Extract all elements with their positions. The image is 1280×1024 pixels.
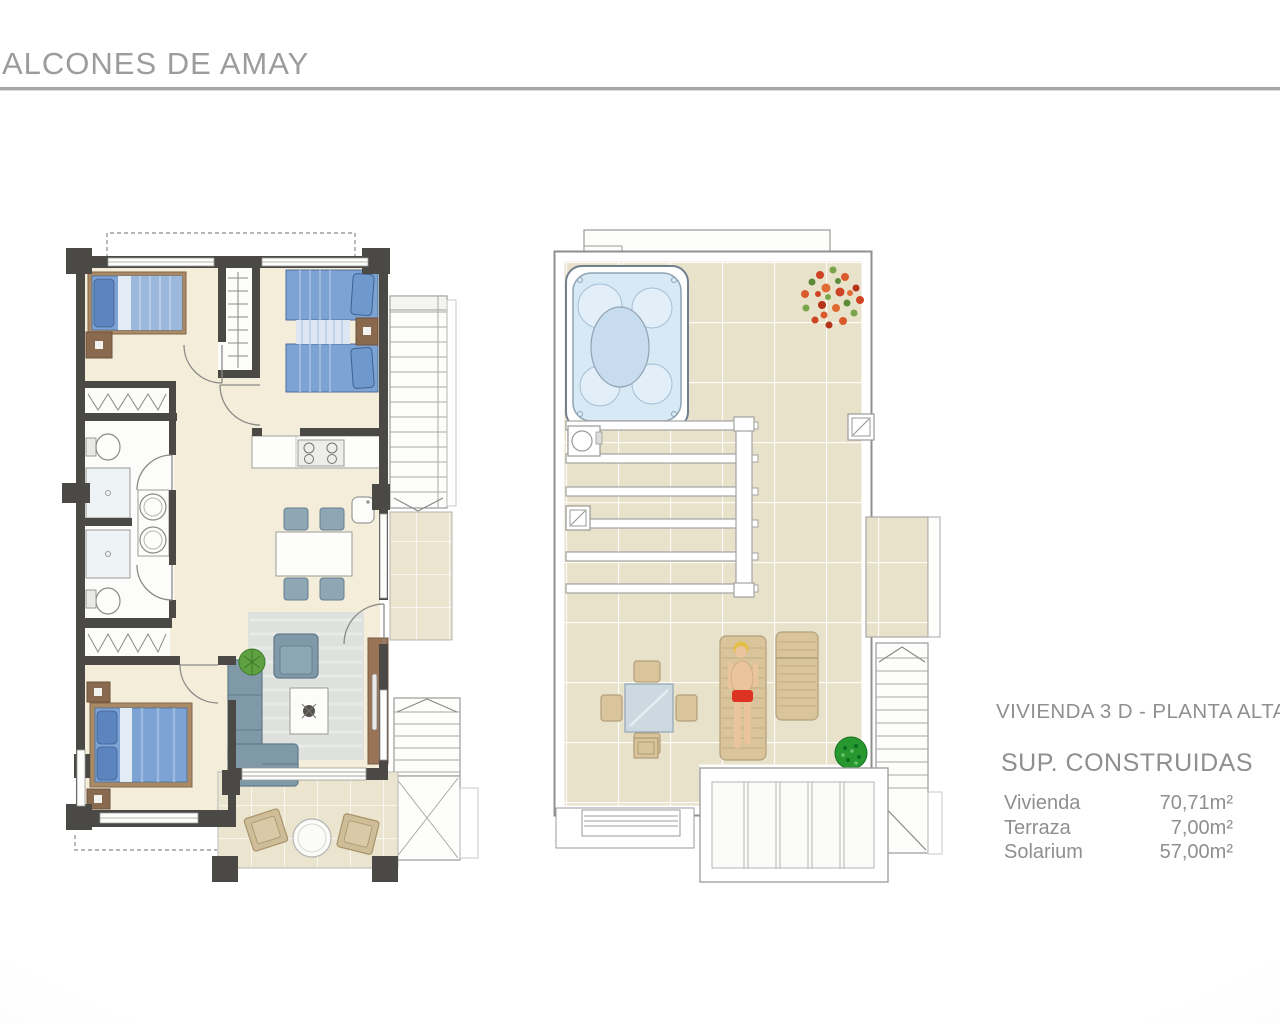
surface-label: Solarium	[1004, 840, 1083, 865]
jacuzzi	[566, 266, 688, 428]
upper-floor-plan	[62, 233, 478, 882]
surfaces-table: Vivienda 70,71m² Terraza 7,00m² Solarium…	[996, 791, 1258, 865]
toilet-icon	[96, 588, 120, 614]
floorplan-canvas	[0, 0, 1280, 1024]
roof-vent-2	[848, 414, 874, 440]
bedroom-2-beds	[286, 270, 378, 392]
sliding-door	[242, 768, 366, 780]
toilet-icon	[96, 434, 120, 460]
chimney-vent	[568, 426, 602, 456]
plant-icon	[239, 649, 265, 675]
surfaces-title: SUP. CONSTRUIDAS	[996, 749, 1258, 778]
surface-row: Vivienda 70,71m²	[1004, 791, 1233, 816]
surface-label: Terraza	[1004, 816, 1071, 841]
exterior-stairs-lower	[394, 698, 478, 860]
sink-icon	[352, 497, 374, 523]
surface-label: Vivienda	[1004, 791, 1080, 816]
exterior-stairs-upper	[390, 296, 456, 511]
plan-title: VIVIENDA 3 D - PLANTA ALTA	[996, 700, 1258, 724]
planter	[634, 738, 658, 758]
slat-window	[556, 808, 694, 848]
roof-vent-1	[566, 506, 590, 530]
surface-value: 70,71m²	[1160, 791, 1233, 816]
info-panel: VIVIENDA 3 D - PLANTA ALTA SUP. CONSTRUI…	[996, 700, 1258, 865]
surface-value: 7,00m²	[1171, 816, 1233, 841]
armchair	[274, 634, 318, 678]
toilet-tank	[86, 590, 96, 608]
surface-row: Terraza 7,00m²	[1004, 816, 1233, 841]
bush-icon	[835, 737, 867, 769]
surface-value: 57,00m²	[1160, 840, 1233, 865]
round-table	[293, 819, 331, 857]
floorplan-sheet: ALCONES DE AMAY	[0, 0, 1280, 1024]
cooktop-icon	[298, 440, 344, 466]
side-balcony	[866, 517, 940, 637]
shower	[86, 530, 130, 578]
entrance-landing	[390, 512, 452, 640]
closet-2-floor	[84, 628, 170, 658]
louver-structure	[700, 768, 888, 882]
shower	[86, 468, 130, 518]
sun-lounger-empty	[776, 632, 818, 720]
sun-lounger-occupied	[720, 636, 766, 760]
toilet-tank	[86, 438, 96, 456]
surface-row: Solarium 57,00m²	[1004, 840, 1233, 865]
solarium-plan	[545, 230, 942, 882]
swimsuit	[732, 690, 753, 702]
vanity-sinks	[138, 490, 169, 556]
coffee-table	[290, 688, 328, 734]
